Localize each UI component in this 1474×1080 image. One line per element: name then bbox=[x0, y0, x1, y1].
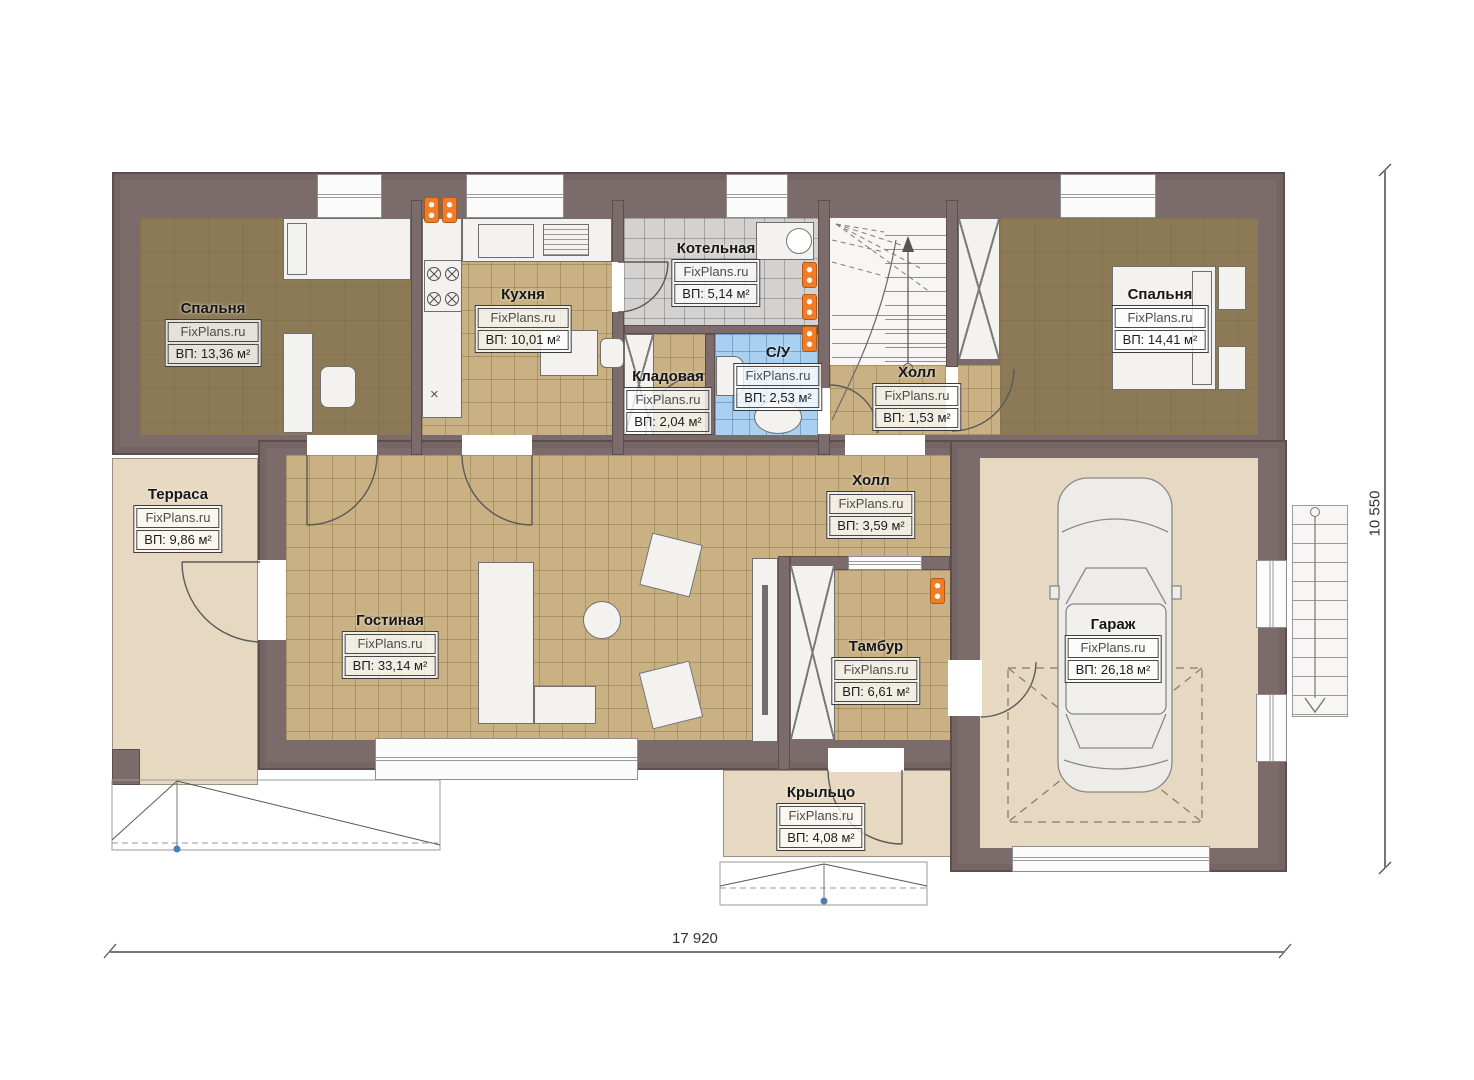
room-area: ВП: 2,53 м² bbox=[736, 388, 819, 408]
room-name: Крыльцо bbox=[787, 784, 855, 801]
washing-machine-drum bbox=[786, 228, 812, 254]
window-living bbox=[375, 738, 638, 780]
room-area: ВП: 33,14 м² bbox=[345, 656, 436, 676]
sliding-door-hall-vestibule bbox=[848, 556, 922, 570]
wardrobe-bedroom-right bbox=[958, 218, 1000, 360]
window-garage-2 bbox=[1256, 694, 1287, 762]
room-name: Терраса bbox=[148, 486, 208, 503]
nightstand-top bbox=[1218, 266, 1246, 310]
kitchen-x-marker: × bbox=[430, 386, 439, 403]
nightstand-bottom bbox=[1218, 346, 1246, 390]
radiator-icon-boiler-2 bbox=[802, 294, 817, 320]
room-name: Кладовая bbox=[632, 368, 704, 385]
stairs-exterior bbox=[1292, 505, 1348, 717]
room-label-porch: Крыльцо FixPlans.ru ВП: 4,08 м² bbox=[776, 784, 865, 851]
door-opening-vestibule-garage bbox=[948, 660, 982, 716]
porch-gable bbox=[720, 862, 927, 905]
watermark: FixPlans.ru bbox=[626, 390, 709, 410]
wall-living-vestibule bbox=[778, 556, 790, 770]
wall-boiler-pantry bbox=[624, 325, 818, 334]
terrace-gable bbox=[112, 780, 440, 853]
room-name: Котельная bbox=[677, 240, 756, 257]
desk-chair-left bbox=[320, 366, 356, 408]
room-label-bedroom-right: Спальня FixPlans.ru ВП: 14,41 м² bbox=[1112, 286, 1209, 353]
room-area: ВП: 1,53 м² bbox=[875, 408, 958, 428]
room-label-terrace: Терраса FixPlans.ru ВП: 9,86 м² bbox=[133, 486, 222, 553]
room-area: ВП: 13,36 м² bbox=[168, 344, 259, 364]
dimension-height: 10 550 bbox=[1366, 487, 1383, 541]
room-label-hall-small: Холл FixPlans.ru ВП: 1,53 м² bbox=[872, 364, 961, 431]
watermark: FixPlans.ru bbox=[168, 322, 259, 342]
garage-gate-opening bbox=[1012, 846, 1210, 872]
room-area: ВП: 26,18 м² bbox=[1068, 660, 1159, 680]
watermark: FixPlans.ru bbox=[674, 262, 757, 282]
room-label-boiler: Котельная FixPlans.ru ВП: 5,14 м² bbox=[671, 240, 760, 307]
room-area: ВП: 5,14 м² bbox=[674, 284, 757, 304]
watermark: FixPlans.ru bbox=[345, 634, 436, 654]
room-label-garage: Гараж FixPlans.ru ВП: 26,18 м² bbox=[1065, 616, 1162, 683]
room-name: С/У bbox=[766, 344, 790, 361]
radiator-icon-vestibule bbox=[930, 578, 945, 604]
kitchen-drainer bbox=[543, 224, 589, 256]
kitchen-sink bbox=[478, 224, 534, 258]
wall-kitchen-boiler bbox=[612, 200, 624, 455]
door-opening-boiler bbox=[612, 262, 624, 312]
desk-left bbox=[283, 333, 313, 433]
room-area: ВП: 10,01 м² bbox=[478, 330, 569, 350]
room-name: Кухня bbox=[501, 286, 545, 303]
window-bedroom-right bbox=[1060, 174, 1156, 218]
window-bedroom-left bbox=[317, 174, 382, 218]
radiator-icon-boiler-1 bbox=[802, 262, 817, 288]
room-area: ВП: 6,61 м² bbox=[834, 682, 917, 702]
watermark: FixPlans.ru bbox=[1115, 308, 1206, 328]
stove bbox=[424, 260, 462, 312]
room-name: Спальня bbox=[181, 300, 246, 317]
kitchen-chair bbox=[600, 338, 624, 368]
room-area: ВП: 14,41 м² bbox=[1115, 330, 1206, 350]
watermark: FixPlans.ru bbox=[136, 508, 219, 528]
door-opening-front bbox=[828, 748, 904, 772]
room-name: Холл bbox=[898, 364, 936, 381]
door-opening-living-bedroom bbox=[307, 435, 377, 455]
wall-bedroom-kitchen bbox=[411, 200, 422, 455]
room-name: Тамбур bbox=[849, 638, 903, 655]
window-garage-1 bbox=[1256, 560, 1287, 628]
wall-stairs-bedroom-right bbox=[946, 200, 958, 367]
watermark: FixPlans.ru bbox=[829, 494, 912, 514]
stairs-main-treads-lower bbox=[832, 302, 946, 366]
kitchen-counter-left bbox=[422, 218, 462, 418]
tv-screen bbox=[762, 585, 768, 715]
dimension-width: 17 920 bbox=[668, 930, 722, 947]
room-name: Гараж bbox=[1091, 616, 1136, 633]
door-opening-terrace bbox=[258, 560, 286, 640]
room-label-bedroom-left: Спальня FixPlans.ru ВП: 13,36 м² bbox=[165, 300, 262, 367]
dimension-line-right bbox=[1384, 170, 1386, 868]
watermark: FixPlans.ru bbox=[1068, 638, 1159, 658]
room-label-bathroom: С/У FixPlans.ru ВП: 2,53 м² bbox=[733, 344, 822, 411]
room-label-vestibule: Тамбур FixPlans.ru ВП: 6,61 м² bbox=[831, 638, 920, 705]
room-label-kitchen: Кухня FixPlans.ru ВП: 10,01 м² bbox=[475, 286, 572, 353]
watermark: FixPlans.ru bbox=[779, 806, 862, 826]
room-name: Холл bbox=[852, 472, 890, 489]
coffee-table bbox=[583, 601, 621, 639]
opening-hall-passage bbox=[845, 435, 925, 455]
dimension-line-bottom bbox=[110, 951, 1285, 953]
sofa-vertical bbox=[478, 562, 534, 724]
watermark: FixPlans.ru bbox=[875, 386, 958, 406]
room-area: ВП: 2,04 м² bbox=[626, 412, 709, 432]
terrace-pillar bbox=[112, 749, 140, 785]
room-label-living: Гостиная FixPlans.ru ВП: 33,14 м² bbox=[342, 612, 439, 679]
watermark: FixPlans.ru bbox=[834, 660, 917, 680]
watermark: FixPlans.ru bbox=[736, 366, 819, 386]
room-name: Гостиная bbox=[356, 612, 424, 629]
watermark: FixPlans.ru bbox=[478, 308, 569, 328]
room-area: ВП: 9,86 м² bbox=[136, 530, 219, 550]
room-area: ВП: 3,59 м² bbox=[829, 516, 912, 536]
window-kitchen bbox=[466, 174, 564, 218]
wardrobe-vestibule bbox=[790, 565, 835, 740]
radiator-icon-kitchen-2 bbox=[442, 197, 457, 223]
stove-burners bbox=[425, 261, 461, 311]
radiator-icon-kitchen-1 bbox=[424, 197, 439, 223]
room-label-hall: Холл FixPlans.ru ВП: 3,59 м² bbox=[826, 472, 915, 539]
room-name: Спальня bbox=[1128, 286, 1193, 303]
room-area: ВП: 4,08 м² bbox=[779, 828, 862, 848]
floor-plan-canvas: × bbox=[0, 0, 1474, 1080]
room-label-pantry: Кладовая FixPlans.ru ВП: 2,04 м² bbox=[623, 368, 712, 435]
sofa-horizontal bbox=[534, 686, 596, 724]
window-boiler bbox=[726, 174, 788, 218]
door-opening-living-kitchen bbox=[462, 435, 532, 455]
pillow-left-bed bbox=[287, 223, 307, 275]
